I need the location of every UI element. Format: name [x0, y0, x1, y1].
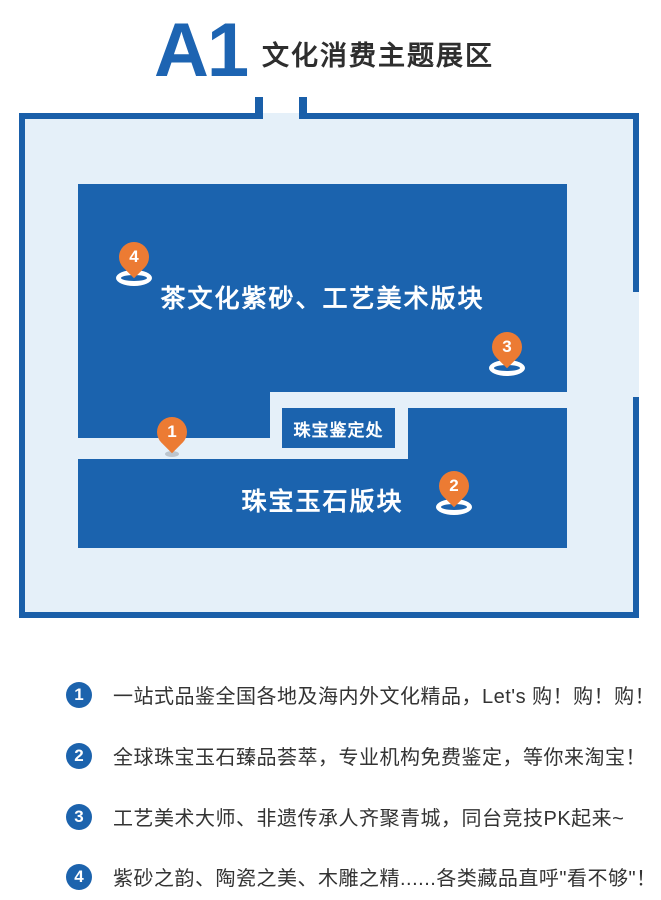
legend-item-text: 工艺美术大师、非遗传承人齐聚青城，同台竞技PK起来~: [113, 802, 624, 831]
location-pin-icon: 1: [151, 411, 193, 453]
tea-culture-block-label: 茶文化紫砂、工艺美术版块: [160, 279, 484, 315]
legend-number-badge: 2: [66, 743, 92, 769]
jewelry-jade-block-right: [408, 408, 567, 460]
location-pin-icon: 2: [433, 465, 475, 507]
legend-item-text: 一站式品鉴全国各地及海内外文化精品，Let's 购！购！购！: [113, 680, 655, 709]
marker-number: 3: [492, 332, 522, 362]
entrance-tick-left: [255, 97, 263, 119]
legend-item-3: 3 工艺美术大师、非遗传承人齐聚青城，同台竞技PK起来~: [66, 802, 624, 831]
marker-number: 1: [157, 417, 187, 447]
legend-item-4: 4 紫砂之韵、陶瓷之美、木雕之精......各类藏品直呼"看不够"！: [66, 862, 657, 891]
legend-number-badge: 3: [66, 804, 92, 830]
jewelry-jade-block-label: 珠宝玉石版块: [241, 482, 403, 518]
marker-number: 4: [119, 242, 149, 272]
legend-number-badge: 1: [66, 682, 92, 708]
exhibition-zone-page: A1 文化消费主题展区 茶文化紫砂、工艺美术版块 珠宝鉴定处 珠宝玉石版块 4 …: [0, 0, 661, 900]
legend-item-text: 紫砂之韵、陶瓷之美、木雕之精......各类藏品直呼"看不够"！: [113, 862, 657, 891]
location-pin-icon: 3: [486, 326, 528, 368]
legend-item-text: 全球珠宝玉石臻品荟萃，专业机构免费鉴定，等你来淘宝！: [113, 741, 646, 770]
jewelry-appraisal-booth: 珠宝鉴定处: [282, 408, 395, 448]
legend-item-2: 2 全球珠宝玉石臻品荟萃，专业机构免费鉴定，等你来淘宝！: [66, 741, 646, 770]
entrance-gap-right: [633, 292, 639, 397]
jewelry-appraisal-label: 珠宝鉴定处: [294, 416, 384, 441]
entrance-gap-top: [263, 113, 299, 119]
page-title: 文化消费主题展区: [262, 34, 494, 73]
location-pin-icon: 4: [113, 236, 155, 278]
legend-item-1: 1 一站式品鉴全国各地及海内外文化精品，Let's 购！购！购！: [66, 680, 655, 709]
entrance-tick-right: [299, 97, 307, 119]
jewelry-jade-block: 珠宝玉石版块: [78, 459, 567, 548]
zone-code: A1: [154, 13, 247, 89]
marker-number: 2: [439, 471, 469, 501]
legend-number-badge: 4: [66, 864, 92, 890]
